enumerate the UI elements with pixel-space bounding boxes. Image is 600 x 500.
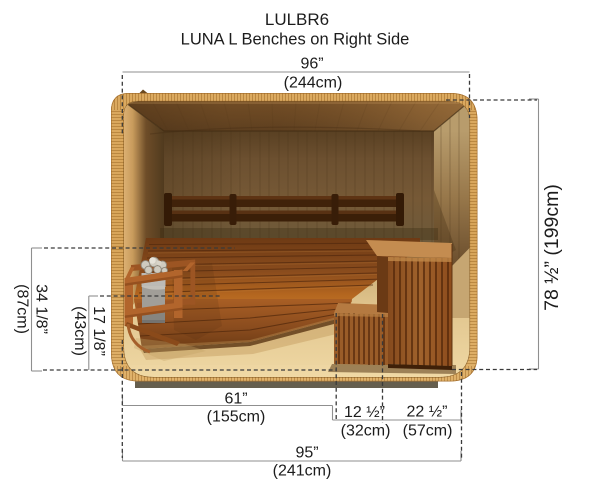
svg-text:95”: 95” <box>295 445 318 462</box>
svg-text:61”: 61” <box>224 391 247 408</box>
svg-text:78 ½” (199cm): 78 ½” (199cm) <box>541 184 563 311</box>
svg-text:12 ½”: 12 ½” <box>344 404 385 421</box>
svg-text:22 ½”: 22 ½” <box>407 404 448 421</box>
svg-text:(244cm): (244cm) <box>284 75 343 92</box>
svg-text:LUNA L Benches on Right Side: LUNA L Benches on Right Side <box>181 31 410 49</box>
svg-text:(241cm): (241cm) <box>273 463 332 480</box>
svg-text:(57cm): (57cm) <box>403 423 453 440</box>
svg-text:LULBR6: LULBR6 <box>265 10 329 29</box>
svg-text:(32cm): (32cm) <box>341 423 391 440</box>
svg-text:(155cm): (155cm) <box>207 409 266 426</box>
svg-text:96”: 96” <box>300 56 323 73</box>
